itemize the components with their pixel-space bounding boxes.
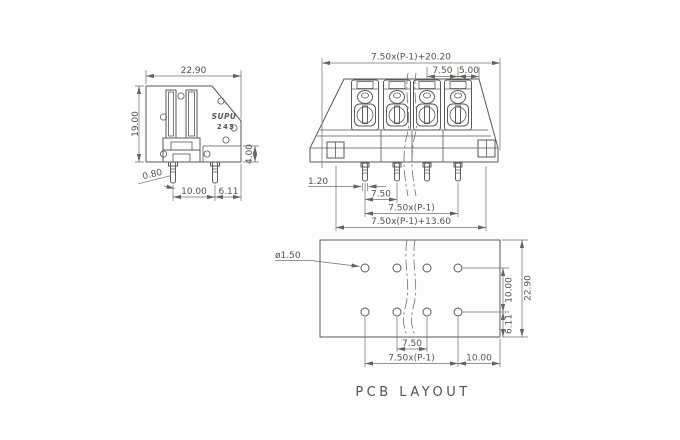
svg-text:1.20: 1.20 (308, 177, 328, 187)
side-dim-step: 4.00 (243, 144, 259, 164)
break-line (404, 73, 409, 196)
svg-text:10.00: 10.00 (505, 277, 515, 303)
break-line (411, 240, 415, 337)
svg-text:6.11: 6.11 (218, 187, 238, 197)
svg-text:6.11: 6.11 (505, 314, 515, 334)
drawing-canvas: SUPU 245 22.90 19.00 4.00 (0, 0, 680, 440)
front-solder-pin (361, 163, 369, 181)
front-dim-pitch: 7.50 5.00 (427, 66, 479, 79)
front-solder-pin (393, 163, 401, 181)
pcb-dim-hole-pitch: 7.50 (397, 317, 427, 352)
technical-drawing-page: SUPU 245 22.90 19.00 4.00 (0, 0, 680, 440)
brand-logo: SUPU (212, 112, 237, 121)
side-dim-pin-width: 0.80 (136, 166, 175, 188)
pcb-dim-hole-diameter: ø1.50 (275, 251, 360, 267)
break-line (403, 240, 407, 337)
svg-text:19.00: 19.00 (131, 111, 141, 137)
model-number: 245 (217, 123, 235, 131)
svg-text:7.50: 7.50 (432, 66, 452, 76)
front-solder-pin (454, 163, 462, 181)
drawing-caption: PCB LAYOUT (355, 385, 470, 400)
side-dim-height: 19.00 (131, 86, 144, 162)
svg-text:7.50: 7.50 (402, 339, 422, 349)
pcb-dim-row-spacing: 10.00 (463, 268, 515, 312)
pcb-dim-edge-margin: 10.00 (458, 339, 500, 367)
side-solder-pin (211, 162, 220, 183)
svg-text:7.50: 7.50 (371, 190, 391, 200)
side-solder-pin (169, 162, 178, 183)
svg-text:7.50x(P-1)+20.20: 7.50x(P-1)+20.20 (371, 53, 451, 63)
side-view: SUPU 245 22.90 19.00 4.00 (131, 66, 259, 201)
svg-text:10.00: 10.00 (181, 187, 207, 197)
terminal-unit (445, 80, 472, 130)
side-dim-pin-spacing: 10.00 (173, 185, 215, 201)
terminal-unit (414, 80, 441, 130)
side-step-line (203, 146, 241, 162)
side-dim-pin-to-edge: 6.11 (215, 164, 241, 201)
svg-text:ø1.50: ø1.50 (275, 251, 301, 261)
svg-text:7.50x(P-1): 7.50x(P-1) (388, 354, 435, 364)
front-dim-pin-span: 7.50x(P-1) (365, 183, 458, 217)
svg-text:22.90: 22.90 (181, 66, 207, 76)
pcb-board-outline (320, 240, 500, 337)
front-body-lines (310, 130, 498, 148)
pcb-view: ø1.50 10.00 6.11 22.90 7.50 7.50x(P-1) (275, 240, 534, 367)
front-solder-pin (423, 163, 431, 181)
svg-text:7.50x(P-1): 7.50x(P-1) (388, 204, 435, 214)
mounting-ear-right (478, 140, 495, 157)
front-body-outline (310, 79, 498, 162)
svg-text:22.90: 22.90 (524, 275, 534, 301)
break-line (412, 73, 417, 196)
pcb-dim-row-to-edge: 6.11 (503, 312, 515, 337)
svg-text:5.00: 5.00 (459, 66, 479, 76)
terminal-unit (352, 80, 379, 130)
svg-text:7.50x(P-1)+13.60: 7.50x(P-1)+13.60 (371, 217, 451, 227)
svg-text:4.00: 4.00 (245, 144, 255, 164)
wire-clamp (163, 90, 200, 162)
front-view: 7.50x(P-1)+20.20 7.50 5.00 1.20 7.50 7.5… (308, 53, 500, 232)
svg-text:10.00: 10.00 (466, 354, 492, 364)
mounting-ear-left (327, 142, 344, 158)
pcb-holes (361, 264, 462, 316)
front-dim-mount-span: 7.50x(P-1)+13.60 (336, 166, 486, 231)
